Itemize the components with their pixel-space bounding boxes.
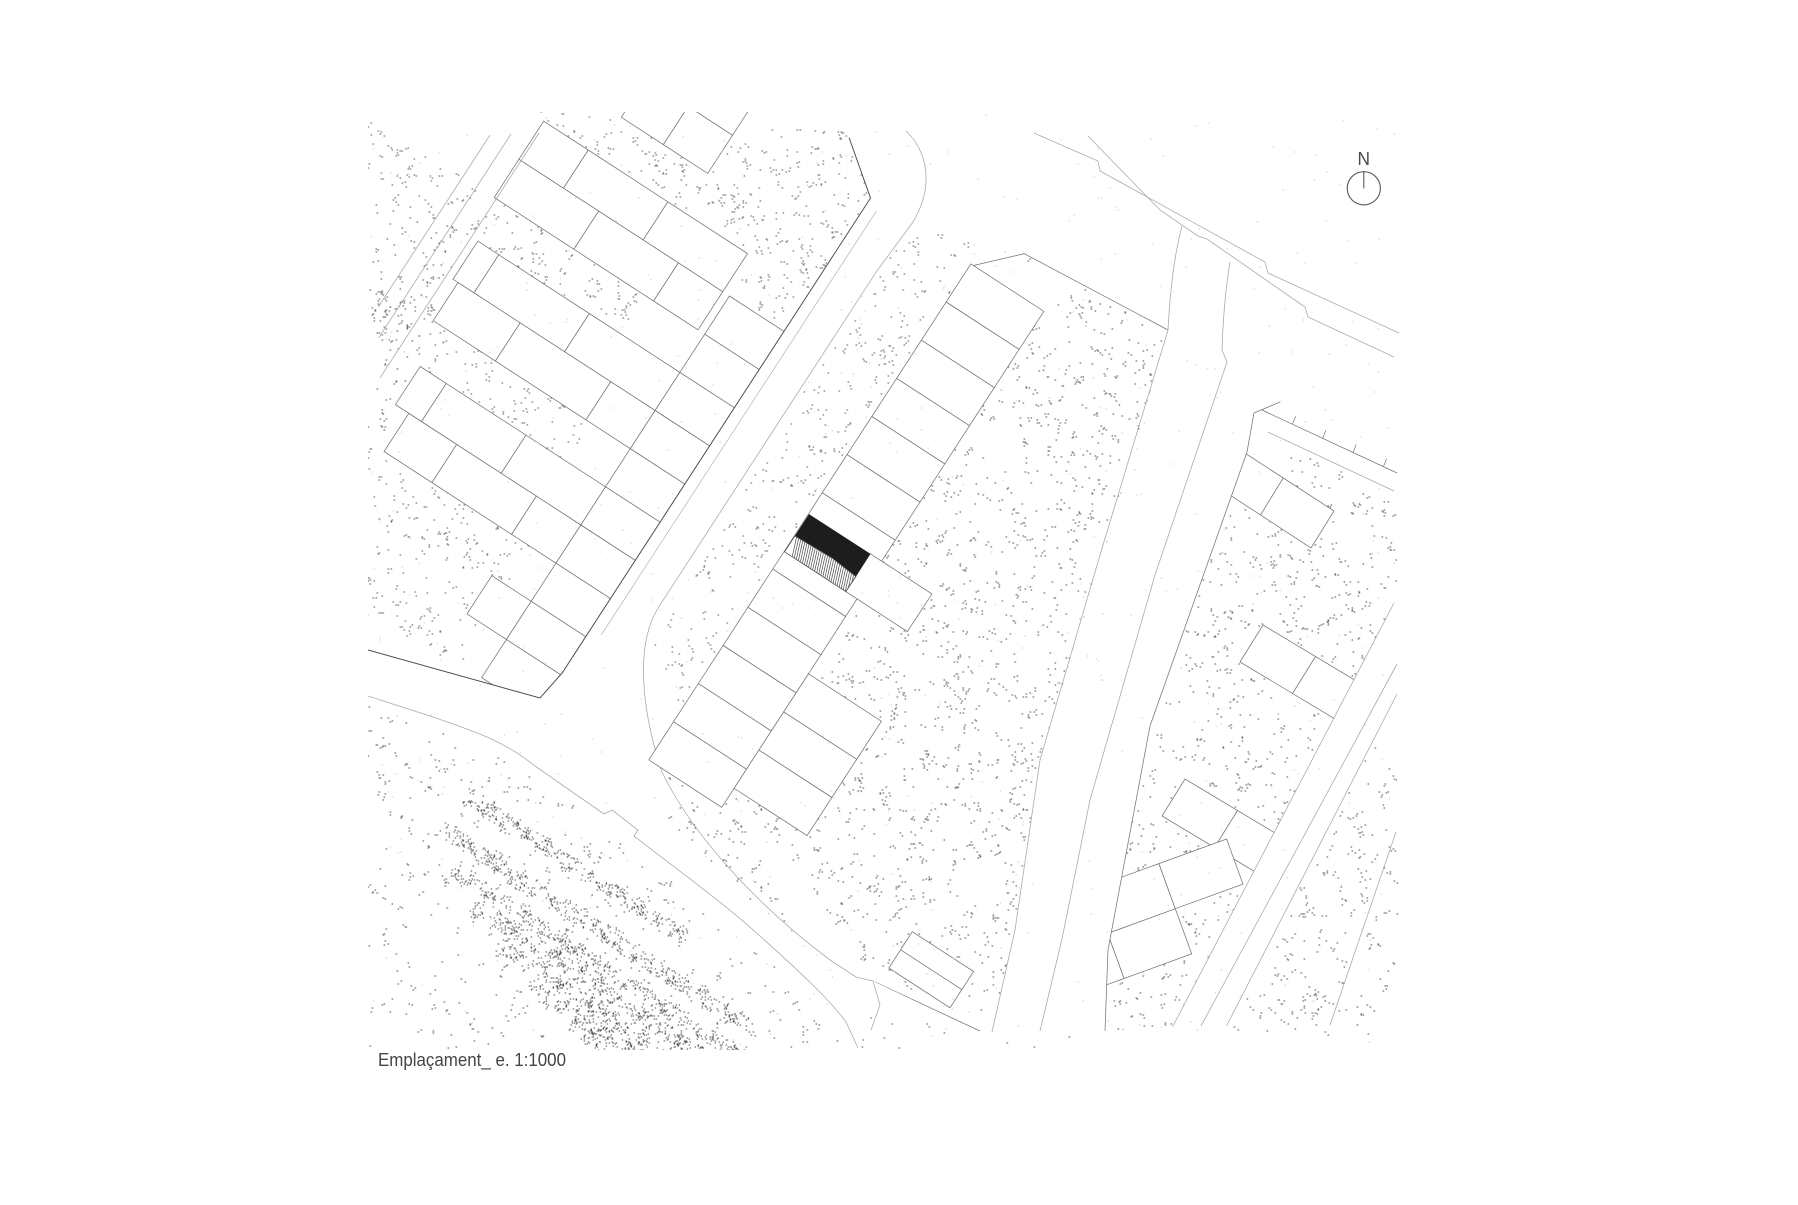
svg-text:N: N	[1358, 148, 1371, 169]
svg-text:Emplaçament_ e. 1:1000: Emplaçament_ e. 1:1000	[378, 1049, 566, 1071]
